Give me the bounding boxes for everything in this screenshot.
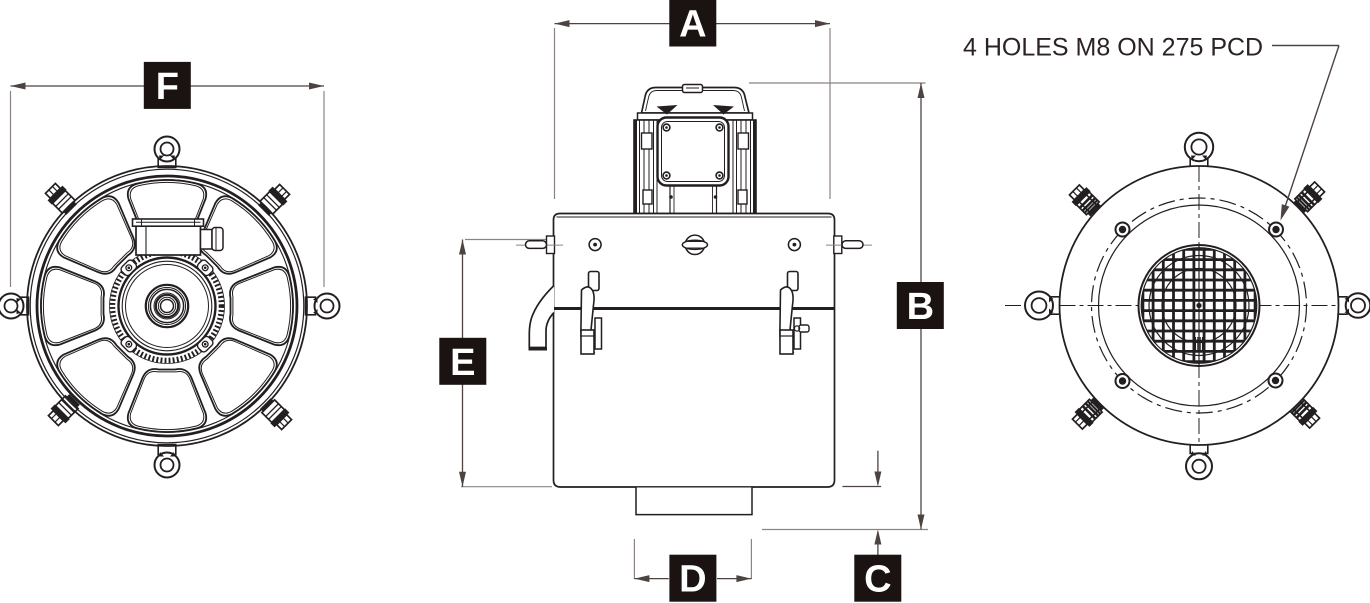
svg-text:E: E [450,342,475,384]
svg-text:D: D [679,559,706,601]
svg-text:A: A [679,4,706,46]
svg-text:4 HOLES M8 ON 275 PCD: 4 HOLES M8 ON 275 PCD [963,34,1263,62]
svg-text:F: F [156,66,179,108]
svg-text:B: B [907,286,934,328]
svg-text:C: C [864,559,891,601]
